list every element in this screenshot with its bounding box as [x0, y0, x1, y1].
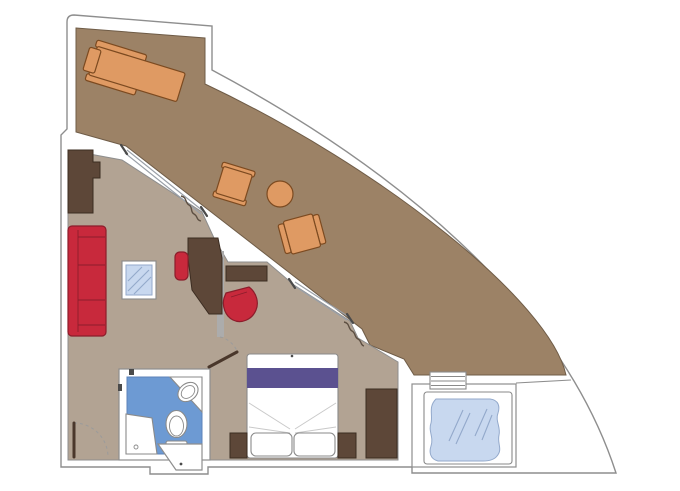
door-frame-mark — [129, 369, 134, 375]
double-bed — [247, 354, 338, 458]
bed-center-mark — [291, 355, 294, 358]
bathroom — [118, 369, 210, 470]
sofa — [68, 226, 106, 336]
tub-chair — [223, 287, 257, 322]
glass-coffee-table — [122, 261, 156, 299]
desk-chair — [175, 252, 188, 280]
whirlpool-tub — [424, 392, 512, 464]
nightstand — [338, 433, 356, 458]
tub-water — [430, 399, 500, 461]
toilet — [166, 411, 187, 449]
suite-floor-plan — [0, 0, 680, 491]
steps — [430, 372, 466, 389]
hinge-mark — [180, 463, 183, 466]
steps-block — [430, 372, 466, 389]
door-frame-mark — [118, 384, 122, 391]
sofa-body — [68, 226, 106, 336]
round-side-table — [267, 181, 293, 207]
bed-runner — [247, 368, 338, 388]
shower — [126, 414, 157, 454]
window-console — [226, 266, 267, 281]
floor-plan-canvas — [0, 0, 680, 491]
wardrobe-bedroom — [366, 389, 397, 458]
pillow — [294, 433, 335, 456]
toilet-bowl — [166, 411, 187, 438]
pillow — [251, 433, 292, 456]
nightstand — [230, 433, 247, 458]
